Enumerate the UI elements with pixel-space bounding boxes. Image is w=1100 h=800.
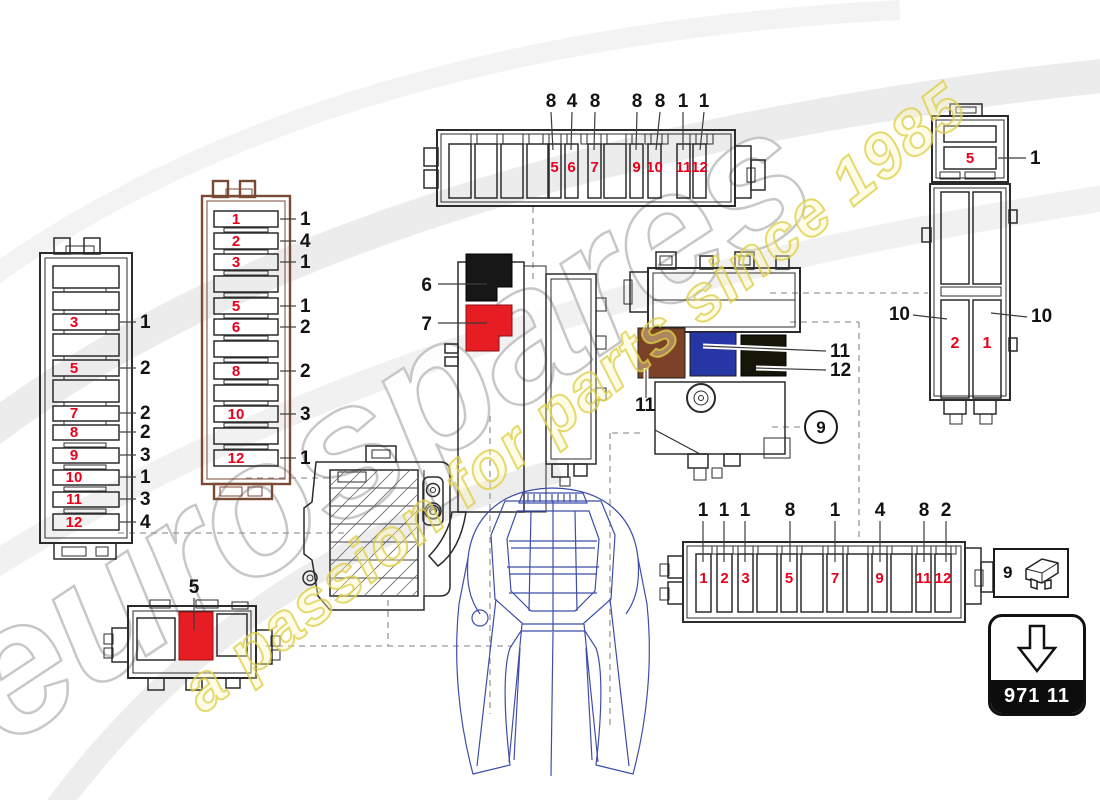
callout-label[interactable]: 2 — [300, 317, 311, 338]
fuse-number: 8 — [232, 363, 240, 380]
callout-label[interactable]: 1 — [300, 448, 311, 469]
circled-callout-9[interactable]: 9 — [805, 411, 837, 443]
callout-label[interactable]: 8 — [655, 91, 666, 112]
fuse-number: 3 — [741, 570, 749, 587]
fuse-number: 5 — [966, 150, 974, 167]
callout-label[interactable]: 2 — [140, 422, 151, 443]
callout-label[interactable]: 1 — [1030, 148, 1041, 169]
fuse-number: 8 — [70, 424, 78, 441]
fuse-number: 1 — [232, 211, 240, 228]
fuse-number: 2 — [951, 335, 960, 352]
down-arrow-icon — [1015, 624, 1059, 674]
fuse-number: 3 — [70, 314, 78, 331]
blue-connector — [690, 332, 736, 376]
fuse-number: 3 — [232, 254, 240, 271]
callout-label[interactable]: 8 — [590, 91, 601, 112]
fuse-number: 12 — [228, 450, 245, 467]
red-connector — [466, 305, 512, 351]
part-number: 971 11 — [991, 680, 1083, 713]
callout-label[interactable]: 7 — [421, 314, 432, 335]
callout-label: 9 — [816, 418, 825, 437]
fuse-number: 5 — [70, 360, 78, 377]
car-outline — [457, 488, 650, 776]
fuse-number: 6 — [567, 159, 575, 176]
fuse-number: 1 — [699, 570, 707, 587]
black-connector — [466, 254, 512, 301]
part-number-box[interactable]: 971 11 — [988, 614, 1086, 716]
callout-label[interactable]: 2 — [300, 361, 311, 382]
callout-label[interactable]: 3 — [300, 404, 311, 425]
callout-label[interactable]: 1 — [300, 296, 311, 317]
fuse-number: 9 — [632, 159, 640, 176]
callout-label[interactable]: 8 — [785, 500, 796, 521]
fuse-number: 5 — [550, 159, 558, 176]
callout-label[interactable]: 10 — [1031, 306, 1052, 327]
callout-label[interactable]: 8 — [546, 91, 557, 112]
callout-label[interactable]: 1 — [719, 500, 730, 521]
legend-box: 9 — [993, 548, 1069, 598]
callout-label[interactable]: 3 — [140, 445, 151, 466]
callout-label[interactable]: 3 — [140, 489, 151, 510]
callout-label[interactable]: 1 — [300, 252, 311, 273]
fuse-number: 5 — [785, 570, 793, 587]
callout-label[interactable]: 2 — [140, 403, 151, 424]
blade-fuse-icon — [1018, 553, 1064, 593]
module-hatched — [303, 446, 450, 610]
callout-label[interactable]: 4 — [567, 91, 578, 112]
fuse-number: 7 — [590, 159, 598, 176]
callout-label[interactable]: 1 — [678, 91, 689, 112]
fuse-number: 7 — [831, 570, 839, 587]
fuse-number: 9 — [70, 447, 78, 464]
dashed-connectors — [118, 207, 928, 728]
fuse-number: 2 — [720, 570, 728, 587]
callout-label[interactable]: 8 — [632, 91, 643, 112]
callout-label[interactable]: 1 — [698, 500, 709, 521]
relay-assembly: 11 12 11 9 — [624, 252, 851, 480]
callout-label[interactable]: 4 — [300, 231, 311, 252]
fuse-number: 2 — [232, 233, 240, 250]
callout-label[interactable]: 1 — [140, 467, 151, 488]
fuse-strip-bottom: 1 2 3 5 7 9 11 12 1 1 1 8 1 4 8 2 — [660, 500, 993, 622]
callout-label[interactable]: 4 — [875, 500, 886, 521]
callout-label[interactable]: 2 — [941, 500, 952, 521]
fuse-strip-top: 5 6 7 9 10 11 12 8 4 8 8 8 1 1 — [424, 91, 765, 206]
fuse-number: 12 — [691, 159, 708, 176]
fuse-number: 9 — [875, 570, 883, 587]
callout-label[interactable]: 5 — [189, 577, 200, 598]
callout-label[interactable]: 10 — [889, 304, 910, 325]
fuse-box-left: 3 5 7 8 9 10 11 12 1 2 2 2 3 1 3 4 — [40, 238, 151, 559]
fuse-number: 10 — [646, 159, 663, 176]
callout-label[interactable]: 2 — [140, 358, 151, 379]
fuse-number: 11 — [916, 570, 932, 587]
callout-label[interactable]: 1 — [740, 500, 751, 521]
fuse-number: 10 — [228, 406, 245, 423]
small-box-5: 5 — [104, 577, 280, 690]
fuse-number: 12 — [66, 514, 83, 531]
fuse-number: 10 — [66, 469, 83, 486]
fuse-box-right: 5 2 1 1 10 10 — [889, 104, 1052, 424]
fuse-number: 11 — [66, 491, 82, 508]
callout-label[interactable]: 1 — [830, 500, 841, 521]
fuse-box-left2: 1 2 3 5 6 8 10 12 1 4 1 1 2 2 3 1 — [202, 181, 311, 499]
red-fuse — [179, 612, 213, 660]
callout-label[interactable]: 4 — [140, 512, 151, 533]
fuse-number: 11 — [676, 159, 692, 176]
fuse-number: 12 — [935, 570, 952, 587]
callout-label[interactable]: 1 — [300, 209, 311, 230]
fuse-number: 1 — [983, 335, 992, 352]
callout-label[interactable]: 1 — [140, 312, 151, 333]
fuse-number: 6 — [232, 319, 240, 336]
fuse-number: 5 — [232, 298, 240, 315]
callout-label[interactable]: 11 — [635, 395, 656, 416]
callout-label[interactable]: 6 — [421, 275, 432, 296]
legend-number: 9 — [1003, 563, 1012, 583]
callout-label[interactable]: 8 — [919, 500, 930, 521]
callout-label[interactable]: 12 — [830, 360, 851, 381]
callout-label[interactable]: 1 — [699, 91, 710, 112]
callout-label[interactable]: 11 — [830, 341, 851, 362]
fuse-number: 7 — [70, 405, 78, 422]
